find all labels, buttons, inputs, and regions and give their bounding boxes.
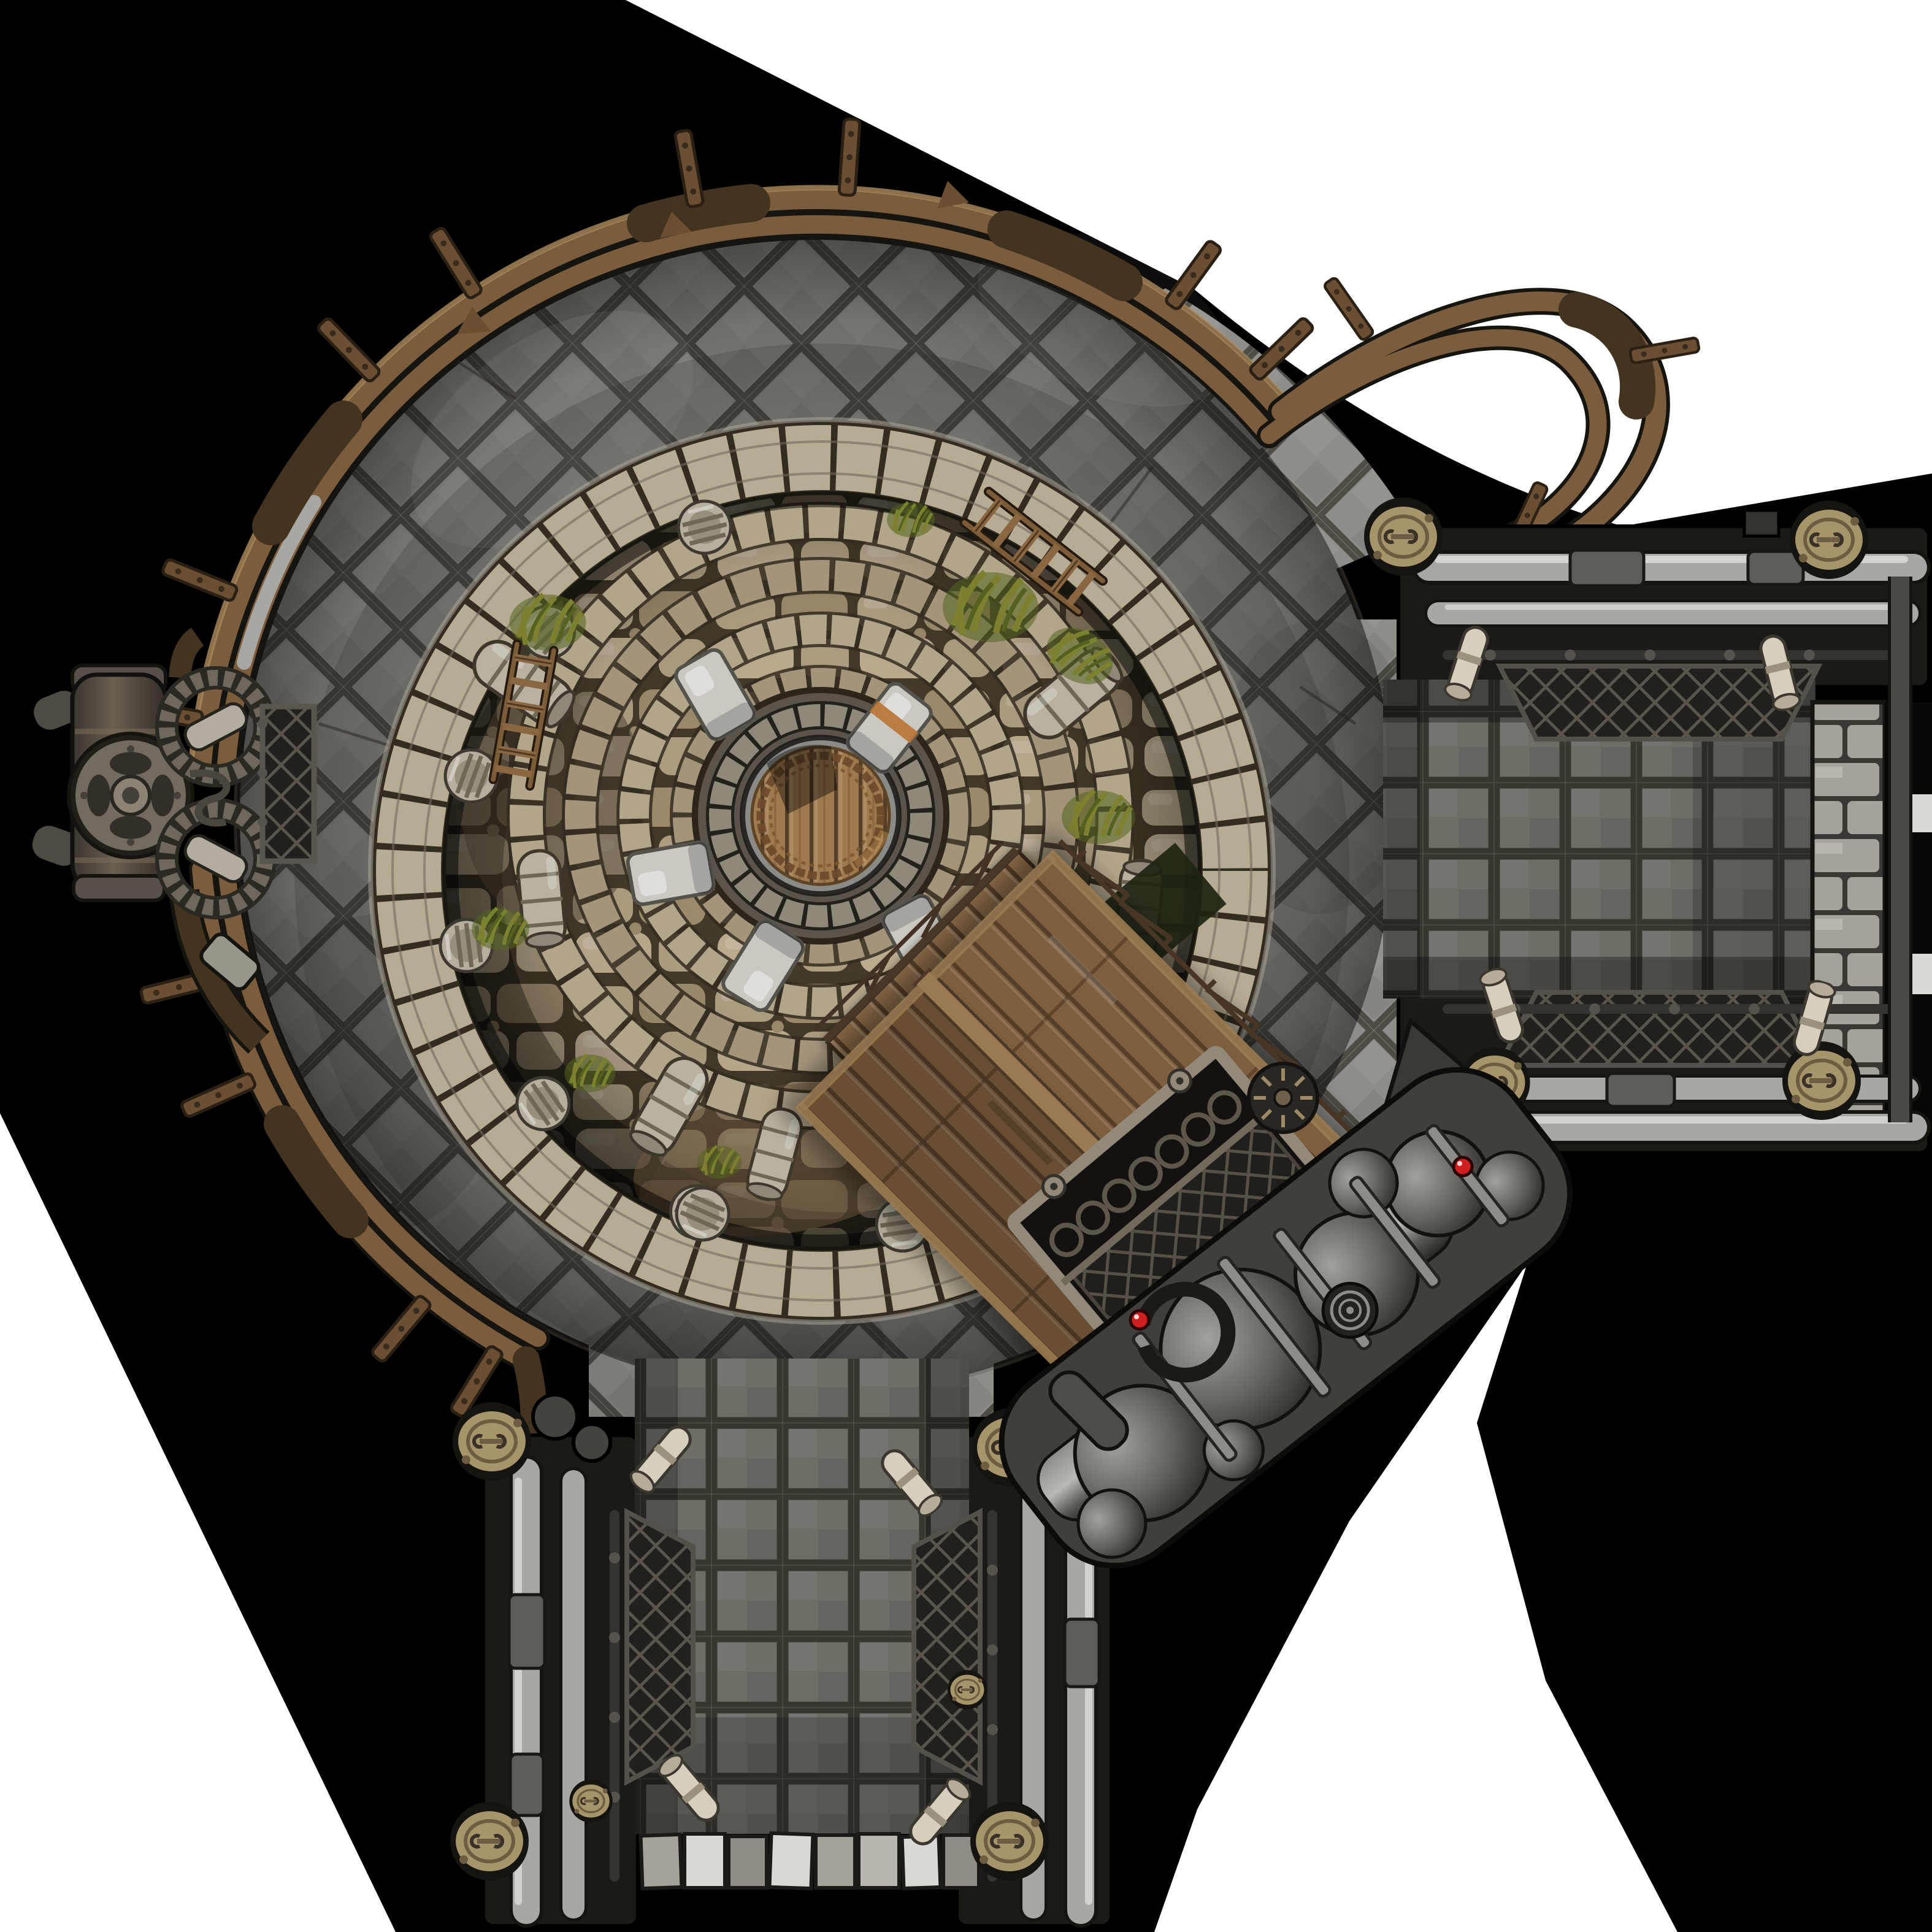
machine-mesh-panel xyxy=(263,707,314,861)
red-indicator-light xyxy=(1454,1157,1472,1176)
brass-ring-small xyxy=(569,1779,612,1822)
red-indicator-light xyxy=(1130,1311,1149,1329)
mesh-panel xyxy=(1500,992,1819,1065)
mesh-panel xyxy=(627,1512,693,1782)
brass-coupler xyxy=(453,1402,531,1481)
battle-map-canvas: Steampunk arena battle map (top-down) xyxy=(0,0,1932,1932)
brass-coupler xyxy=(1790,500,1868,579)
mesh-panel xyxy=(914,1512,980,1782)
brass-coupler xyxy=(970,1802,1049,1880)
brass-ring-small xyxy=(948,1670,987,1709)
edge-block xyxy=(1910,954,1932,994)
edge-block xyxy=(1911,794,1932,832)
brass-coupler xyxy=(450,1802,529,1880)
brass-coupler xyxy=(1364,497,1443,576)
brass-coupler xyxy=(1782,1041,1861,1120)
